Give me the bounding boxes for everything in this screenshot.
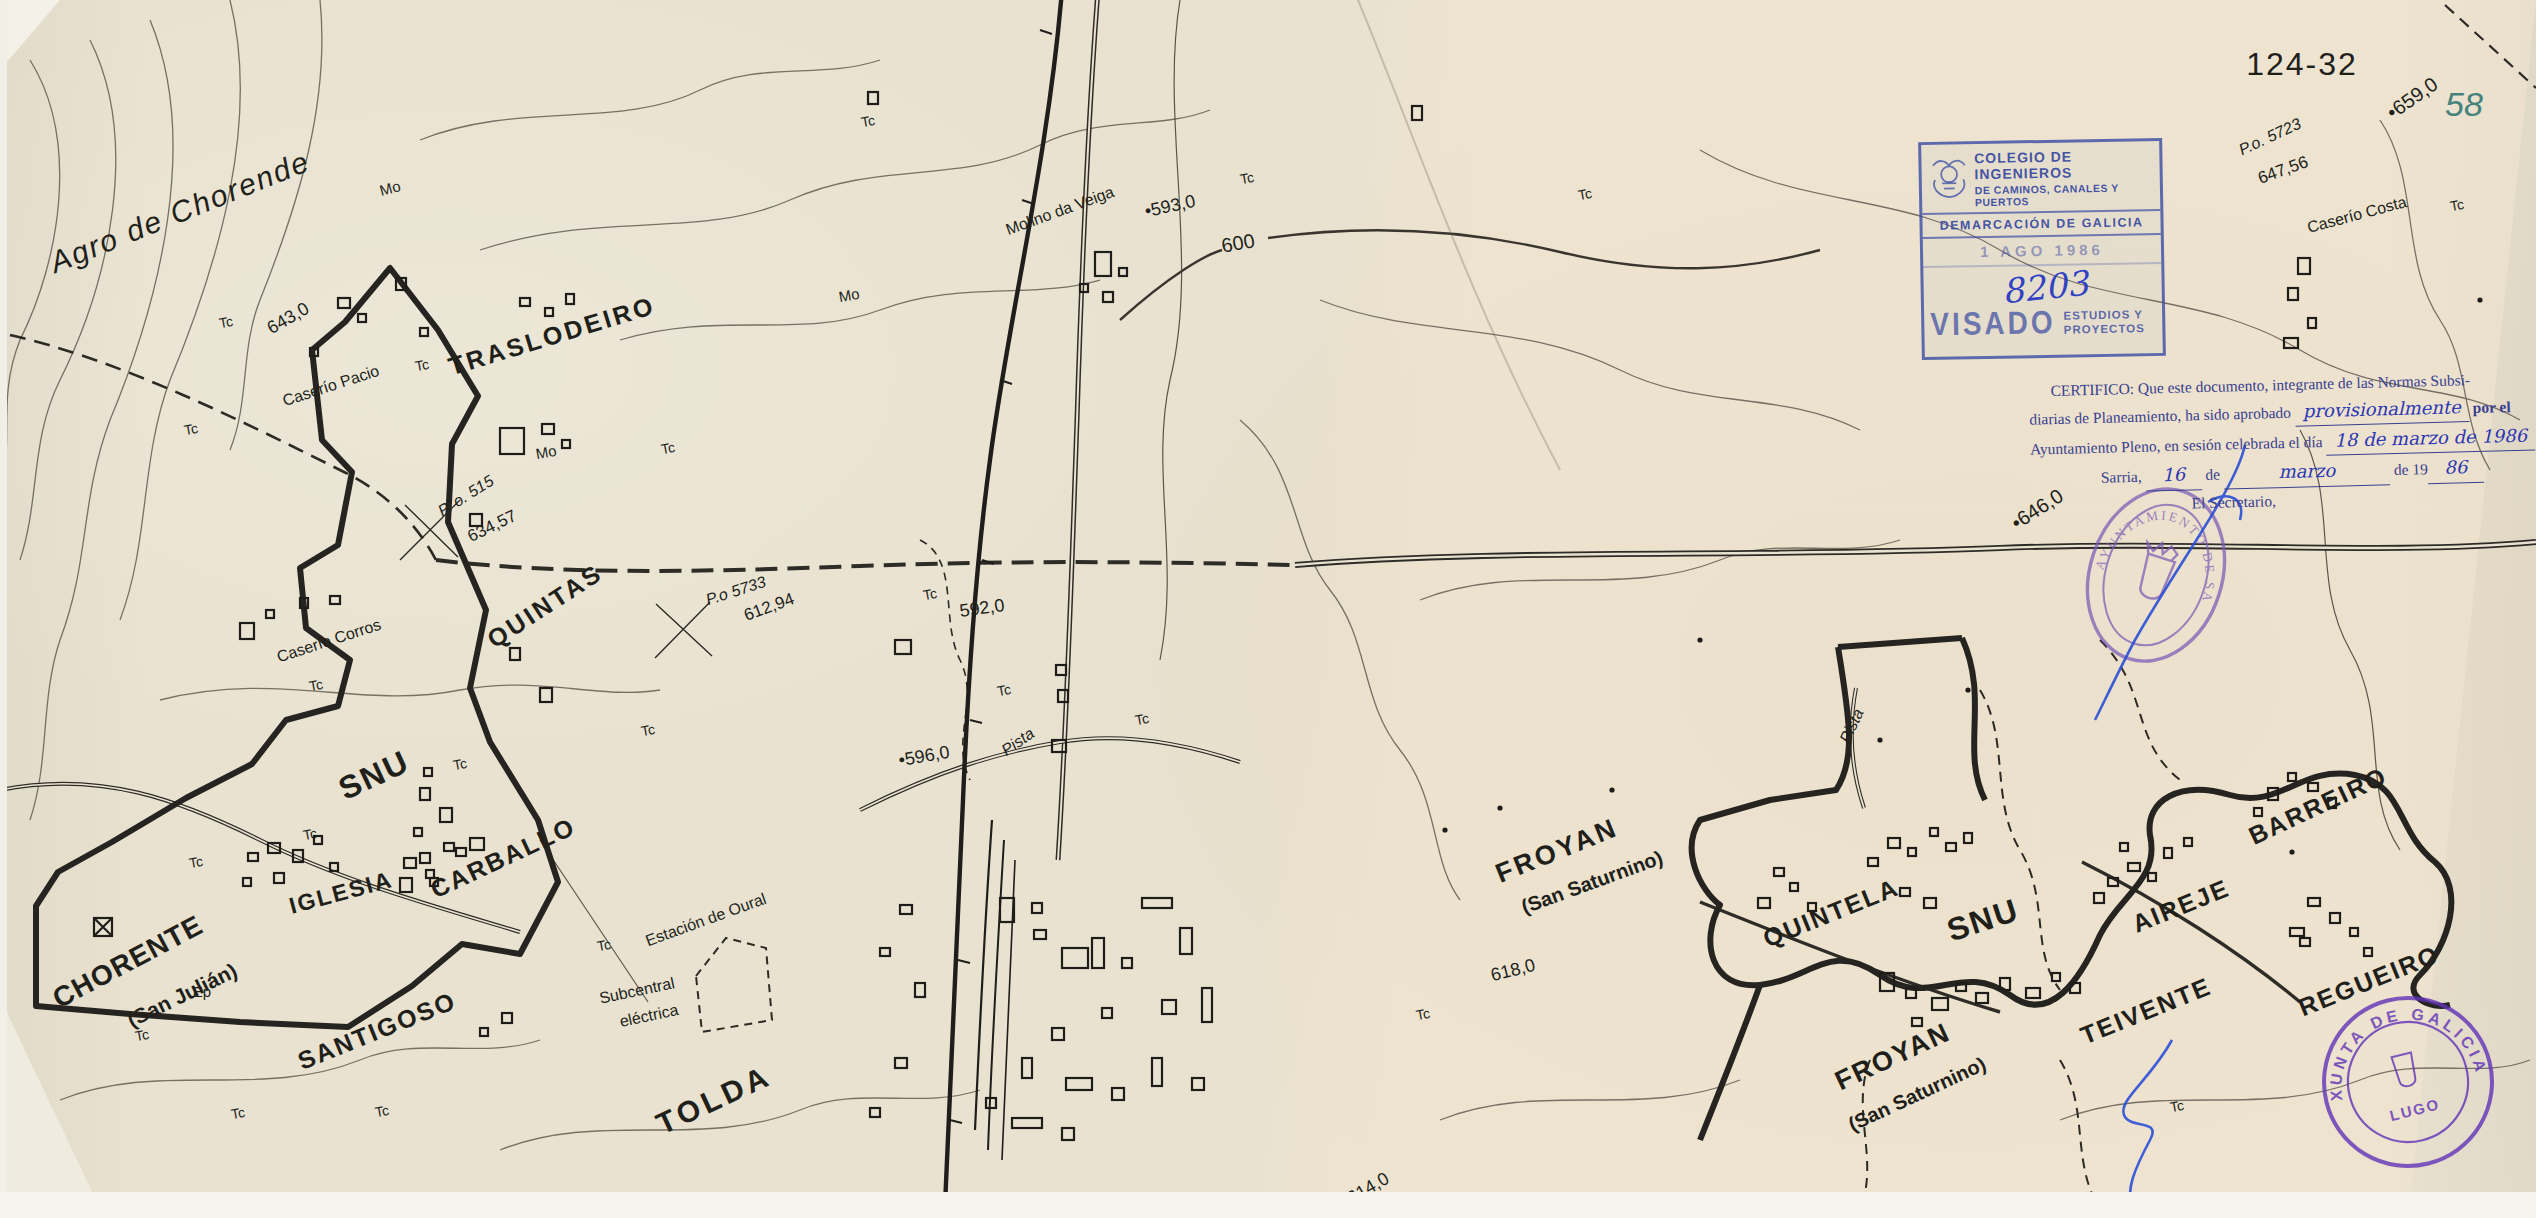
map-label: 634,57: [465, 507, 519, 545]
map-label: SNU: [1943, 893, 2023, 946]
map-label: Mo: [837, 286, 860, 304]
map-label: Tc: [302, 826, 318, 842]
map-label: Tc: [218, 314, 234, 330]
map-label: Tc: [1577, 186, 1593, 202]
map-label: Tc: [308, 677, 324, 693]
visado-word: VISADO: [1930, 304, 2056, 343]
scan-edge-bottom: [0, 1192, 2536, 1218]
map-label: Tc: [860, 113, 876, 129]
map-label: Tc: [183, 421, 199, 437]
map-label: Mo: [534, 443, 557, 461]
map-label: 643,0: [264, 299, 312, 337]
map-label: P.o. 5723: [2237, 116, 2304, 159]
map-label: Tc: [230, 1105, 246, 1121]
map-label: Tc: [1134, 711, 1150, 727]
map-label: 124-32: [2246, 48, 2358, 80]
map-label: IGLESIA: [287, 868, 395, 918]
map-label: 58: [2445, 87, 2483, 121]
certificate-block: CERTIFICO: Que este documento, integrant…: [2028, 365, 2536, 519]
scan-edge-left: [0, 0, 7, 1218]
eagle-crest-icon: [1929, 153, 1969, 206]
map-label: Pista: [999, 725, 1037, 759]
map-label: Agro de Chorende: [46, 146, 314, 278]
map-label: Tc: [374, 1103, 390, 1119]
map-label: Tc: [596, 937, 612, 953]
map-label: •659,0: [2383, 73, 2441, 122]
map-label: Pista: [1837, 706, 1867, 745]
map-label: Caserío Corros: [275, 617, 383, 666]
map-label: BARREIRO: [2245, 763, 2391, 849]
scanned-map-sheet: AYUNTAMIENTO DE SARRIA XUNTA DE GALICIA …: [0, 0, 2536, 1218]
map-label: CARBALLO: [427, 814, 579, 903]
certificate-date-handwriting: 18 de marzo de 1986: [2326, 421, 2535, 457]
map-label: TRASLODEIRO: [446, 293, 659, 380]
map-label: Ep: [193, 984, 211, 999]
map-label: 647,56: [2256, 153, 2311, 187]
map-label: •593,0: [1143, 192, 1197, 220]
map-label: P. o. 515: [435, 473, 496, 519]
map-label: SNU: [334, 745, 414, 805]
visado-side-line2: PROYECTOS: [2064, 322, 2145, 335]
map-label: Subcentral: [598, 975, 676, 1007]
map-label: Tc: [640, 722, 656, 738]
map-label: AIREJE: [2129, 875, 2233, 937]
map-label: Tc: [414, 357, 430, 373]
map-label: Tc: [2449, 197, 2465, 213]
map-label: Tc: [452, 756, 468, 772]
map-label: Mo: [378, 178, 402, 198]
map-label: QUINTAS: [483, 560, 607, 653]
colegio-stamp-line2: DE CAMINOS, CANALES Y PUERTOS: [1975, 181, 2153, 208]
map-label: Tc: [2169, 1098, 2185, 1114]
map-label: 600: [1220, 230, 1256, 255]
map-label: REGUEIRO: [2295, 941, 2443, 1020]
map-label: Caserío Costa: [2306, 194, 2409, 236]
colegio-stamp-date: 1 AGO 1986: [1923, 235, 2161, 268]
map-label: 612,94: [742, 590, 797, 624]
visado-side-line1: ESTUDIOS Y: [2063, 308, 2143, 321]
map-label: 592,0: [958, 596, 1005, 620]
map-label: Tc: [996, 682, 1012, 698]
map-label: Tc: [922, 586, 938, 602]
map-label: Tc: [134, 1027, 150, 1043]
map-label: 618,0: [1489, 956, 1537, 984]
map-label: Molino da Veiga: [1004, 184, 1116, 238]
certificate-approval-handwriting: provisionalmente: [2294, 392, 2469, 427]
map-label: Caserío Pacio: [281, 363, 382, 409]
map-label: Estación de Oural: [644, 891, 769, 950]
map-label: SANTIGOSO: [294, 988, 459, 1074]
map-label: Tc: [1415, 1006, 1431, 1022]
colegio-stamp-line1: COLEGIO DE INGENIEROS: [1974, 147, 2152, 182]
colegio-visado-stamp: COLEGIO DE INGENIEROS DE CAMINOS, CANALE…: [1918, 138, 2166, 360]
map-label: QUINTELA: [1760, 874, 1903, 951]
map-label: TOLDA: [652, 1060, 776, 1139]
map-label: TEIVENTE: [2077, 974, 2215, 1049]
map-label: Tc: [188, 854, 204, 870]
map-label: •596,0: [897, 743, 951, 770]
map-label: eléctrica: [618, 1002, 680, 1030]
map-label: Tc: [1239, 170, 1255, 186]
map-label: Tc: [660, 440, 676, 456]
